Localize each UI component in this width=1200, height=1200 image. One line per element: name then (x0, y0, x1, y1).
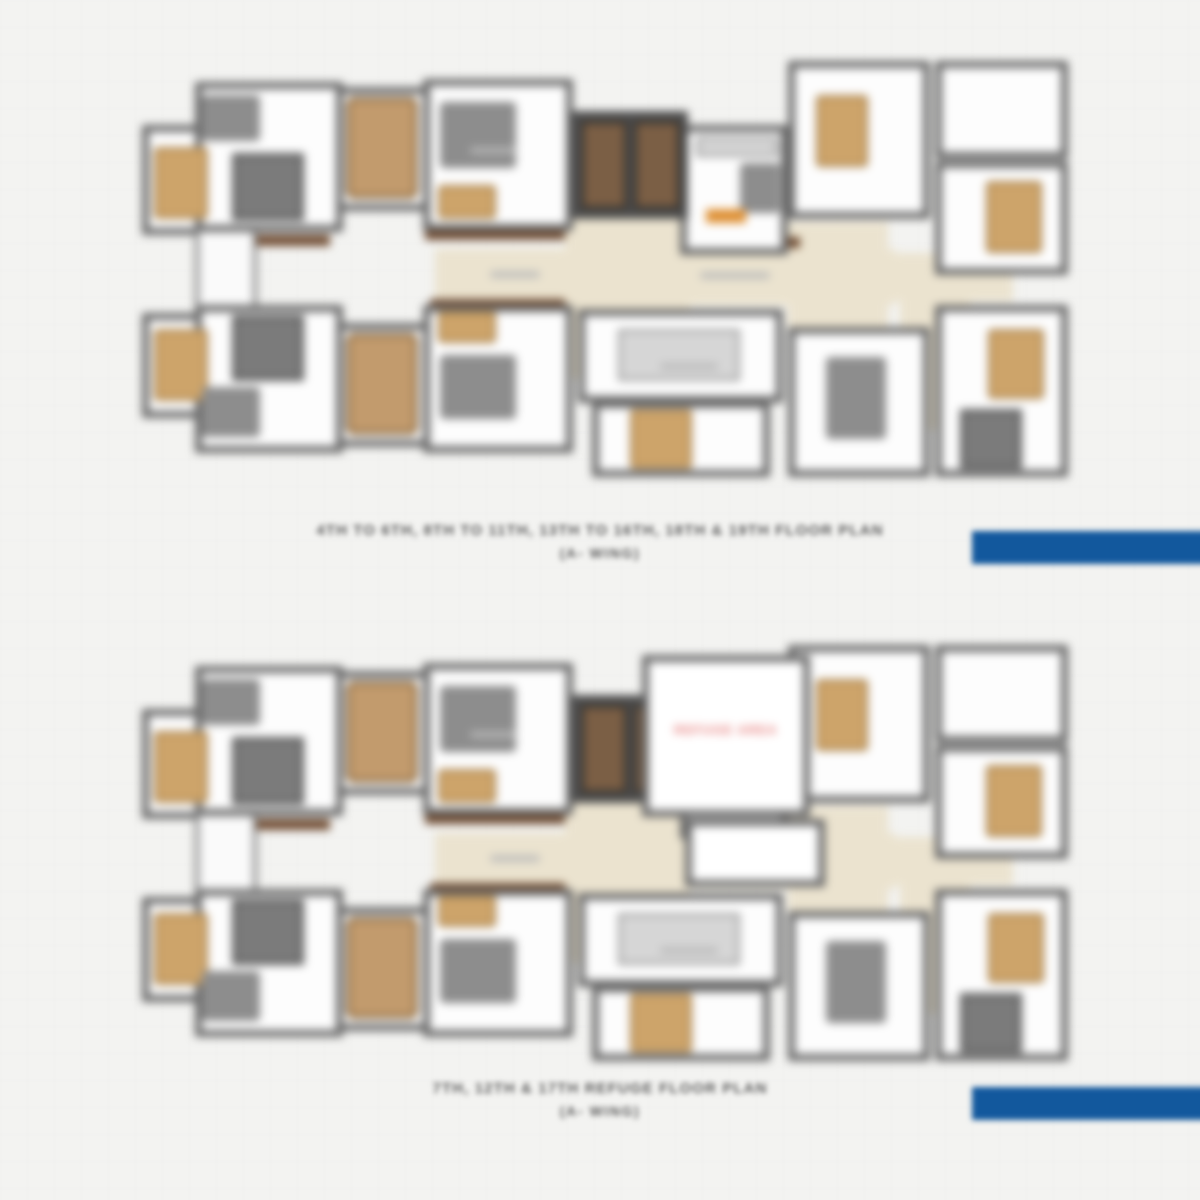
furniture (202, 971, 260, 1021)
wardrobe (346, 97, 418, 199)
accent-bar-bottom (972, 1087, 1200, 1120)
floor-plan-refuge-floors: REFUGE AREA (140, 641, 1070, 1063)
bed-gray (826, 941, 886, 1023)
bathroom (232, 899, 304, 965)
dining-table (618, 329, 740, 381)
room-label-smudge (490, 855, 540, 862)
bed (630, 993, 692, 1053)
kitchen-platform (706, 209, 746, 223)
bed (438, 769, 496, 803)
floor-plan-typical-floors (140, 57, 1070, 479)
bathroom (960, 409, 1022, 469)
bed (986, 765, 1042, 837)
bed (816, 95, 868, 167)
wardrobe (346, 917, 418, 1019)
room-label-smudge (470, 147, 516, 154)
bedroom (935, 61, 1068, 159)
furniture (202, 679, 260, 725)
bed-gray (440, 102, 516, 168)
brochure-page: 4TH TO 6TH, 8TH TO 11TH, 13TH TO 16TH, 1… (0, 0, 1200, 1200)
furniture (202, 387, 260, 437)
bed (438, 311, 496, 343)
room-label-smudge (660, 363, 718, 370)
room-label-smudge (660, 947, 718, 954)
bathroom (232, 737, 304, 805)
bed (438, 185, 496, 219)
lobby-right (788, 222, 888, 327)
bed (154, 731, 208, 803)
bed (154, 147, 208, 219)
furniture (202, 95, 260, 141)
lift-door (581, 121, 627, 209)
bathroom (232, 315, 304, 381)
bedroom (935, 645, 1068, 743)
fridge (740, 163, 780, 213)
room-label-smudge (470, 731, 516, 738)
room-label-smudge (490, 271, 540, 278)
bed (154, 329, 208, 401)
bathroom (232, 153, 304, 221)
room-label-smudge (700, 272, 770, 279)
bed-gray (440, 939, 516, 1003)
refuge-area-label: REFUGE AREA (645, 723, 807, 737)
bed-gray (440, 686, 516, 752)
bathroom (960, 993, 1022, 1053)
bed (988, 913, 1044, 983)
bed (630, 409, 692, 469)
bed-gray (440, 355, 516, 419)
bed (986, 181, 1042, 253)
dining-table (618, 913, 740, 965)
refuge-room-lower (685, 819, 825, 887)
accent-bar-top (972, 531, 1200, 564)
wardrobe (346, 333, 418, 435)
bed-gray (826, 357, 886, 439)
bed (816, 679, 868, 751)
bed (438, 895, 496, 927)
lift-door (634, 121, 680, 209)
lift-door (581, 705, 627, 793)
kitchen-counter (696, 137, 778, 157)
wardrobe (346, 681, 418, 783)
bed (988, 329, 1044, 399)
bed (154, 913, 208, 985)
